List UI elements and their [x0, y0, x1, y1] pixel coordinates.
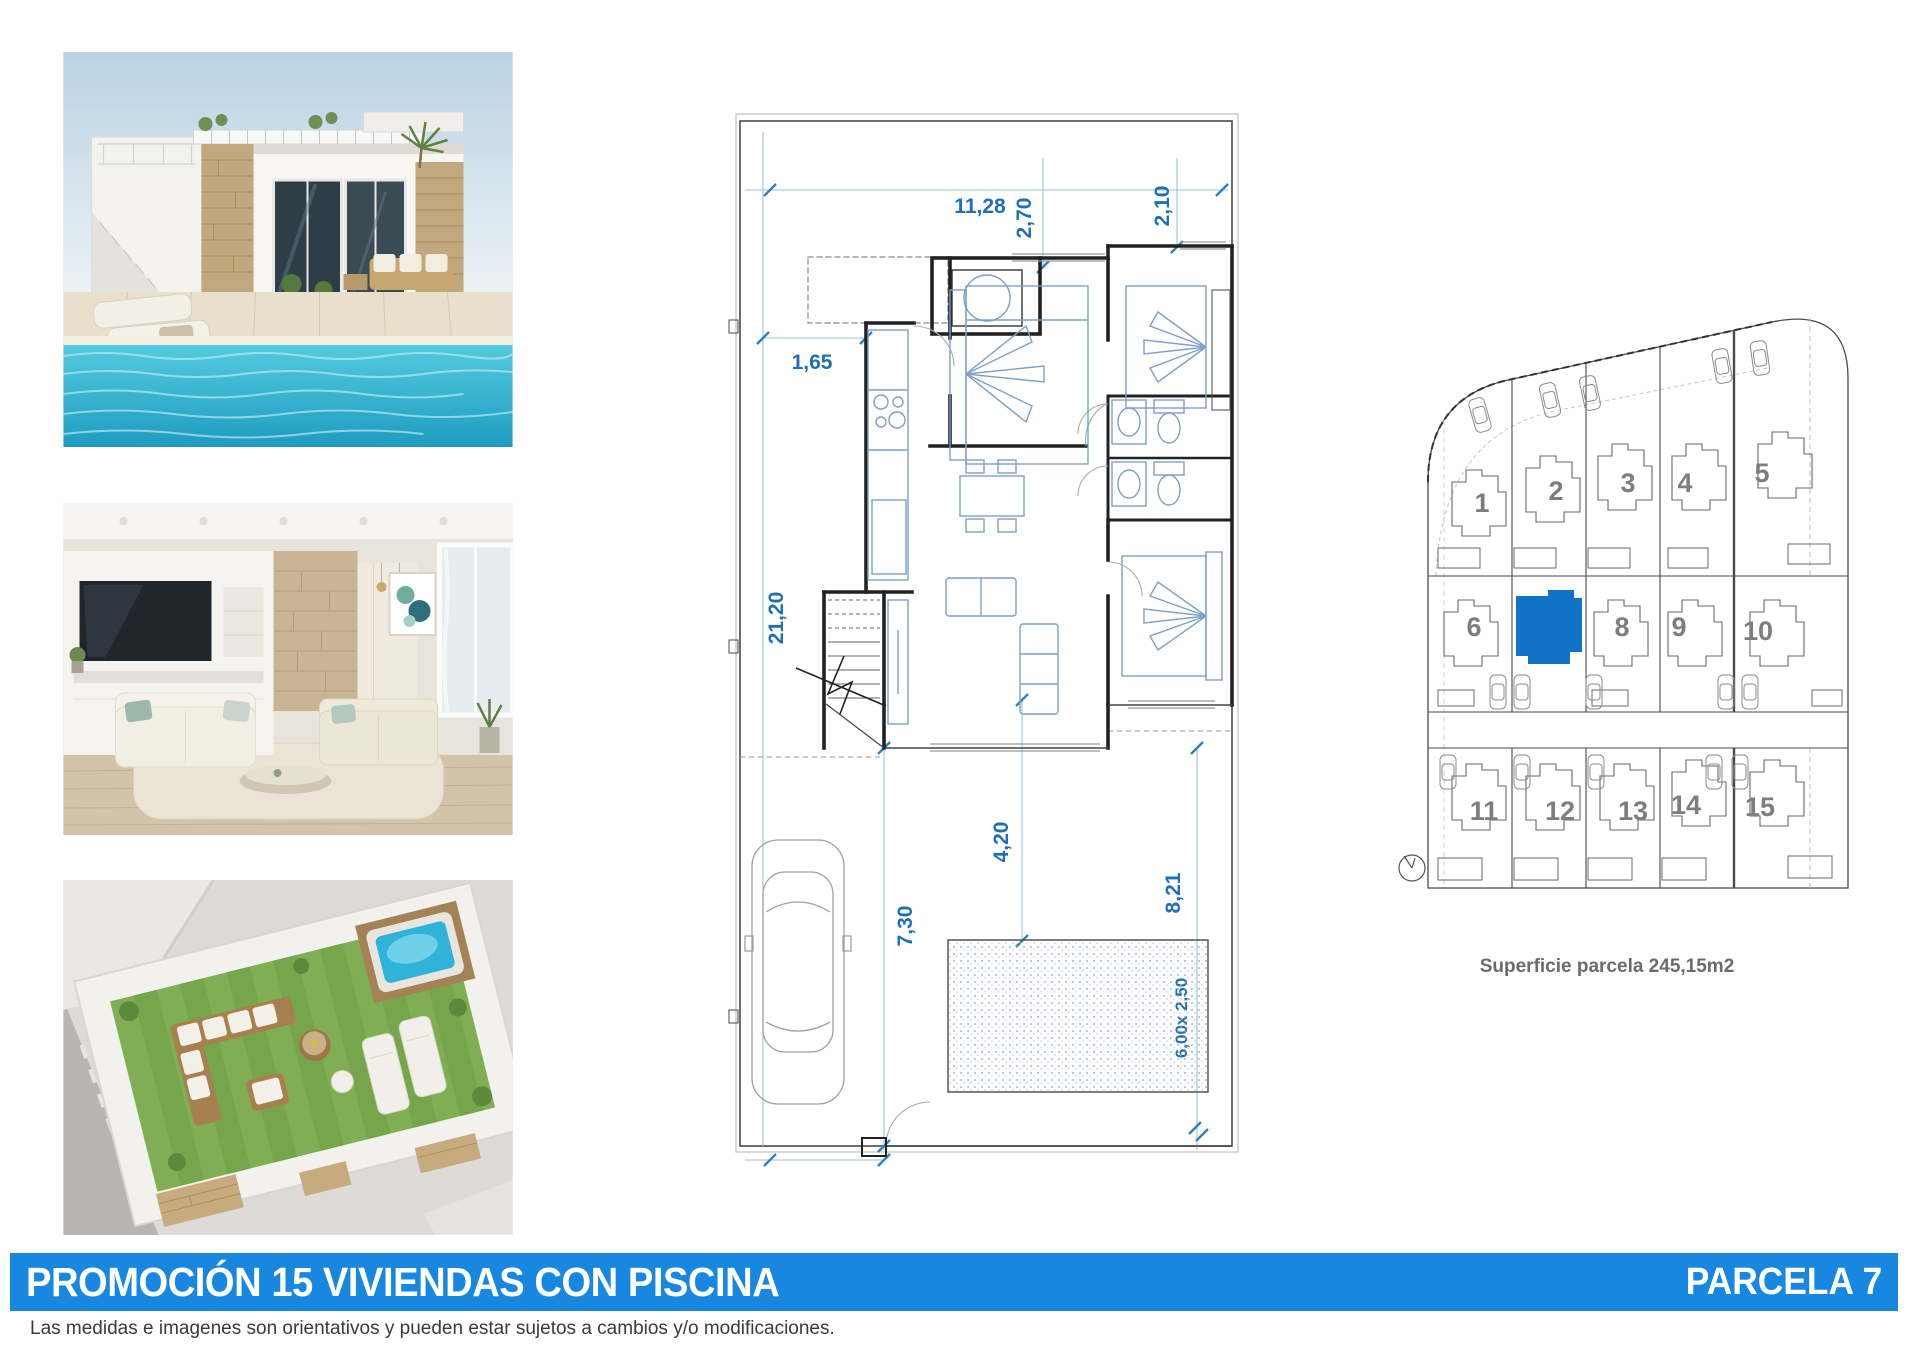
- disclaimer-text: Las medidas e imagenes son orientativos …: [30, 1318, 835, 1340]
- plot-number-15: 15: [1745, 792, 1775, 822]
- promotion-title: PROMOCIÓN 15 VIVIENDAS CON PISCINA: [26, 1259, 779, 1306]
- furniture: [868, 270, 1230, 724]
- dim-terrace-depth: 4,20: [990, 822, 1013, 863]
- dim-plot-width-top: 11,28: [954, 195, 1006, 218]
- bed-main: [950, 286, 1088, 464]
- dim-plot-depth-left: 21,20: [765, 592, 788, 645]
- brochure-page: 11,28 2,70 2,10 1,65 21,20 4,20 7,30 8,2…: [0, 0, 1920, 1356]
- floor-plan: 11,28 2,70 2,10 1,65 21,20 4,20 7,30 8,2…: [590, 100, 1250, 1170]
- living-room-photo: [63, 503, 513, 835]
- pool-plan: [948, 940, 1208, 1092]
- car-driveway: [745, 840, 851, 1104]
- coffee-table: [240, 765, 332, 794]
- roof-terrace-photo: [63, 880, 513, 1235]
- plot-number-8: 8: [1614, 612, 1629, 642]
- roof-terrace-photo-art: [63, 880, 513, 1235]
- pool: [64, 345, 513, 447]
- plot-number-11: 11: [1470, 796, 1499, 826]
- wall-art: [390, 573, 436, 635]
- stone-accent-wall: [274, 551, 358, 711]
- plot-number-6: 6: [1466, 612, 1481, 642]
- site-plan: 1 2 3 4 5 6 8 9 10 11 12 13 14 15: [1390, 300, 1860, 900]
- plot-number-5: 5: [1754, 458, 1769, 488]
- plot-number-1: 1: [1474, 488, 1489, 518]
- bathroom-1: [1112, 400, 1184, 444]
- plot-number-12: 12: [1545, 796, 1575, 826]
- sofa-left: [116, 693, 256, 767]
- plot-number-2: 2: [1548, 476, 1563, 506]
- plot-number-14: 14: [1671, 790, 1701, 820]
- parcel-surface-caption: Superficie parcela 245,15m2: [1452, 956, 1762, 978]
- tv-cabinet: [888, 600, 908, 724]
- sofa-right: [320, 699, 438, 765]
- dim-setback-top-center: 2,70: [1013, 198, 1036, 239]
- plot-number-4: 4: [1677, 468, 1692, 498]
- stairs: [796, 600, 886, 714]
- bed-second: [1126, 286, 1230, 410]
- kitchen-counter: [868, 330, 908, 580]
- dining-table: [960, 460, 1024, 532]
- bathroom-2: [1112, 462, 1184, 506]
- washer: [952, 270, 1022, 326]
- plot-number-9: 9: [1671, 612, 1686, 642]
- dim-driveway-depth: 7,30: [894, 906, 917, 947]
- dim-setback-left: 1,65: [792, 351, 833, 374]
- window: [440, 545, 513, 715]
- parcel-label: PARCELA 7: [1686, 1261, 1882, 1304]
- dim-setback-top-right: 2,10: [1151, 186, 1174, 227]
- plot-number-13: 13: [1618, 796, 1648, 826]
- title-banner: PROMOCIÓN 15 VIVIENDAS CON PISCINA PARCE…: [10, 1253, 1898, 1311]
- sofa-set: [946, 578, 1058, 714]
- stove: [874, 395, 905, 428]
- plot-number-10: 10: [1743, 616, 1773, 646]
- windows: [930, 242, 1226, 751]
- pool-coping: [64, 336, 513, 345]
- north-arrow-icon: [1399, 855, 1425, 881]
- bed-third: [1122, 552, 1222, 680]
- plot-number-3: 3: [1620, 468, 1635, 498]
- exterior-pool-photo-art: [63, 52, 513, 447]
- dim-garden-depth-right: 8,21: [1162, 872, 1185, 913]
- living-room-photo-art: [63, 503, 513, 835]
- exterior-pool-photo: [63, 52, 513, 447]
